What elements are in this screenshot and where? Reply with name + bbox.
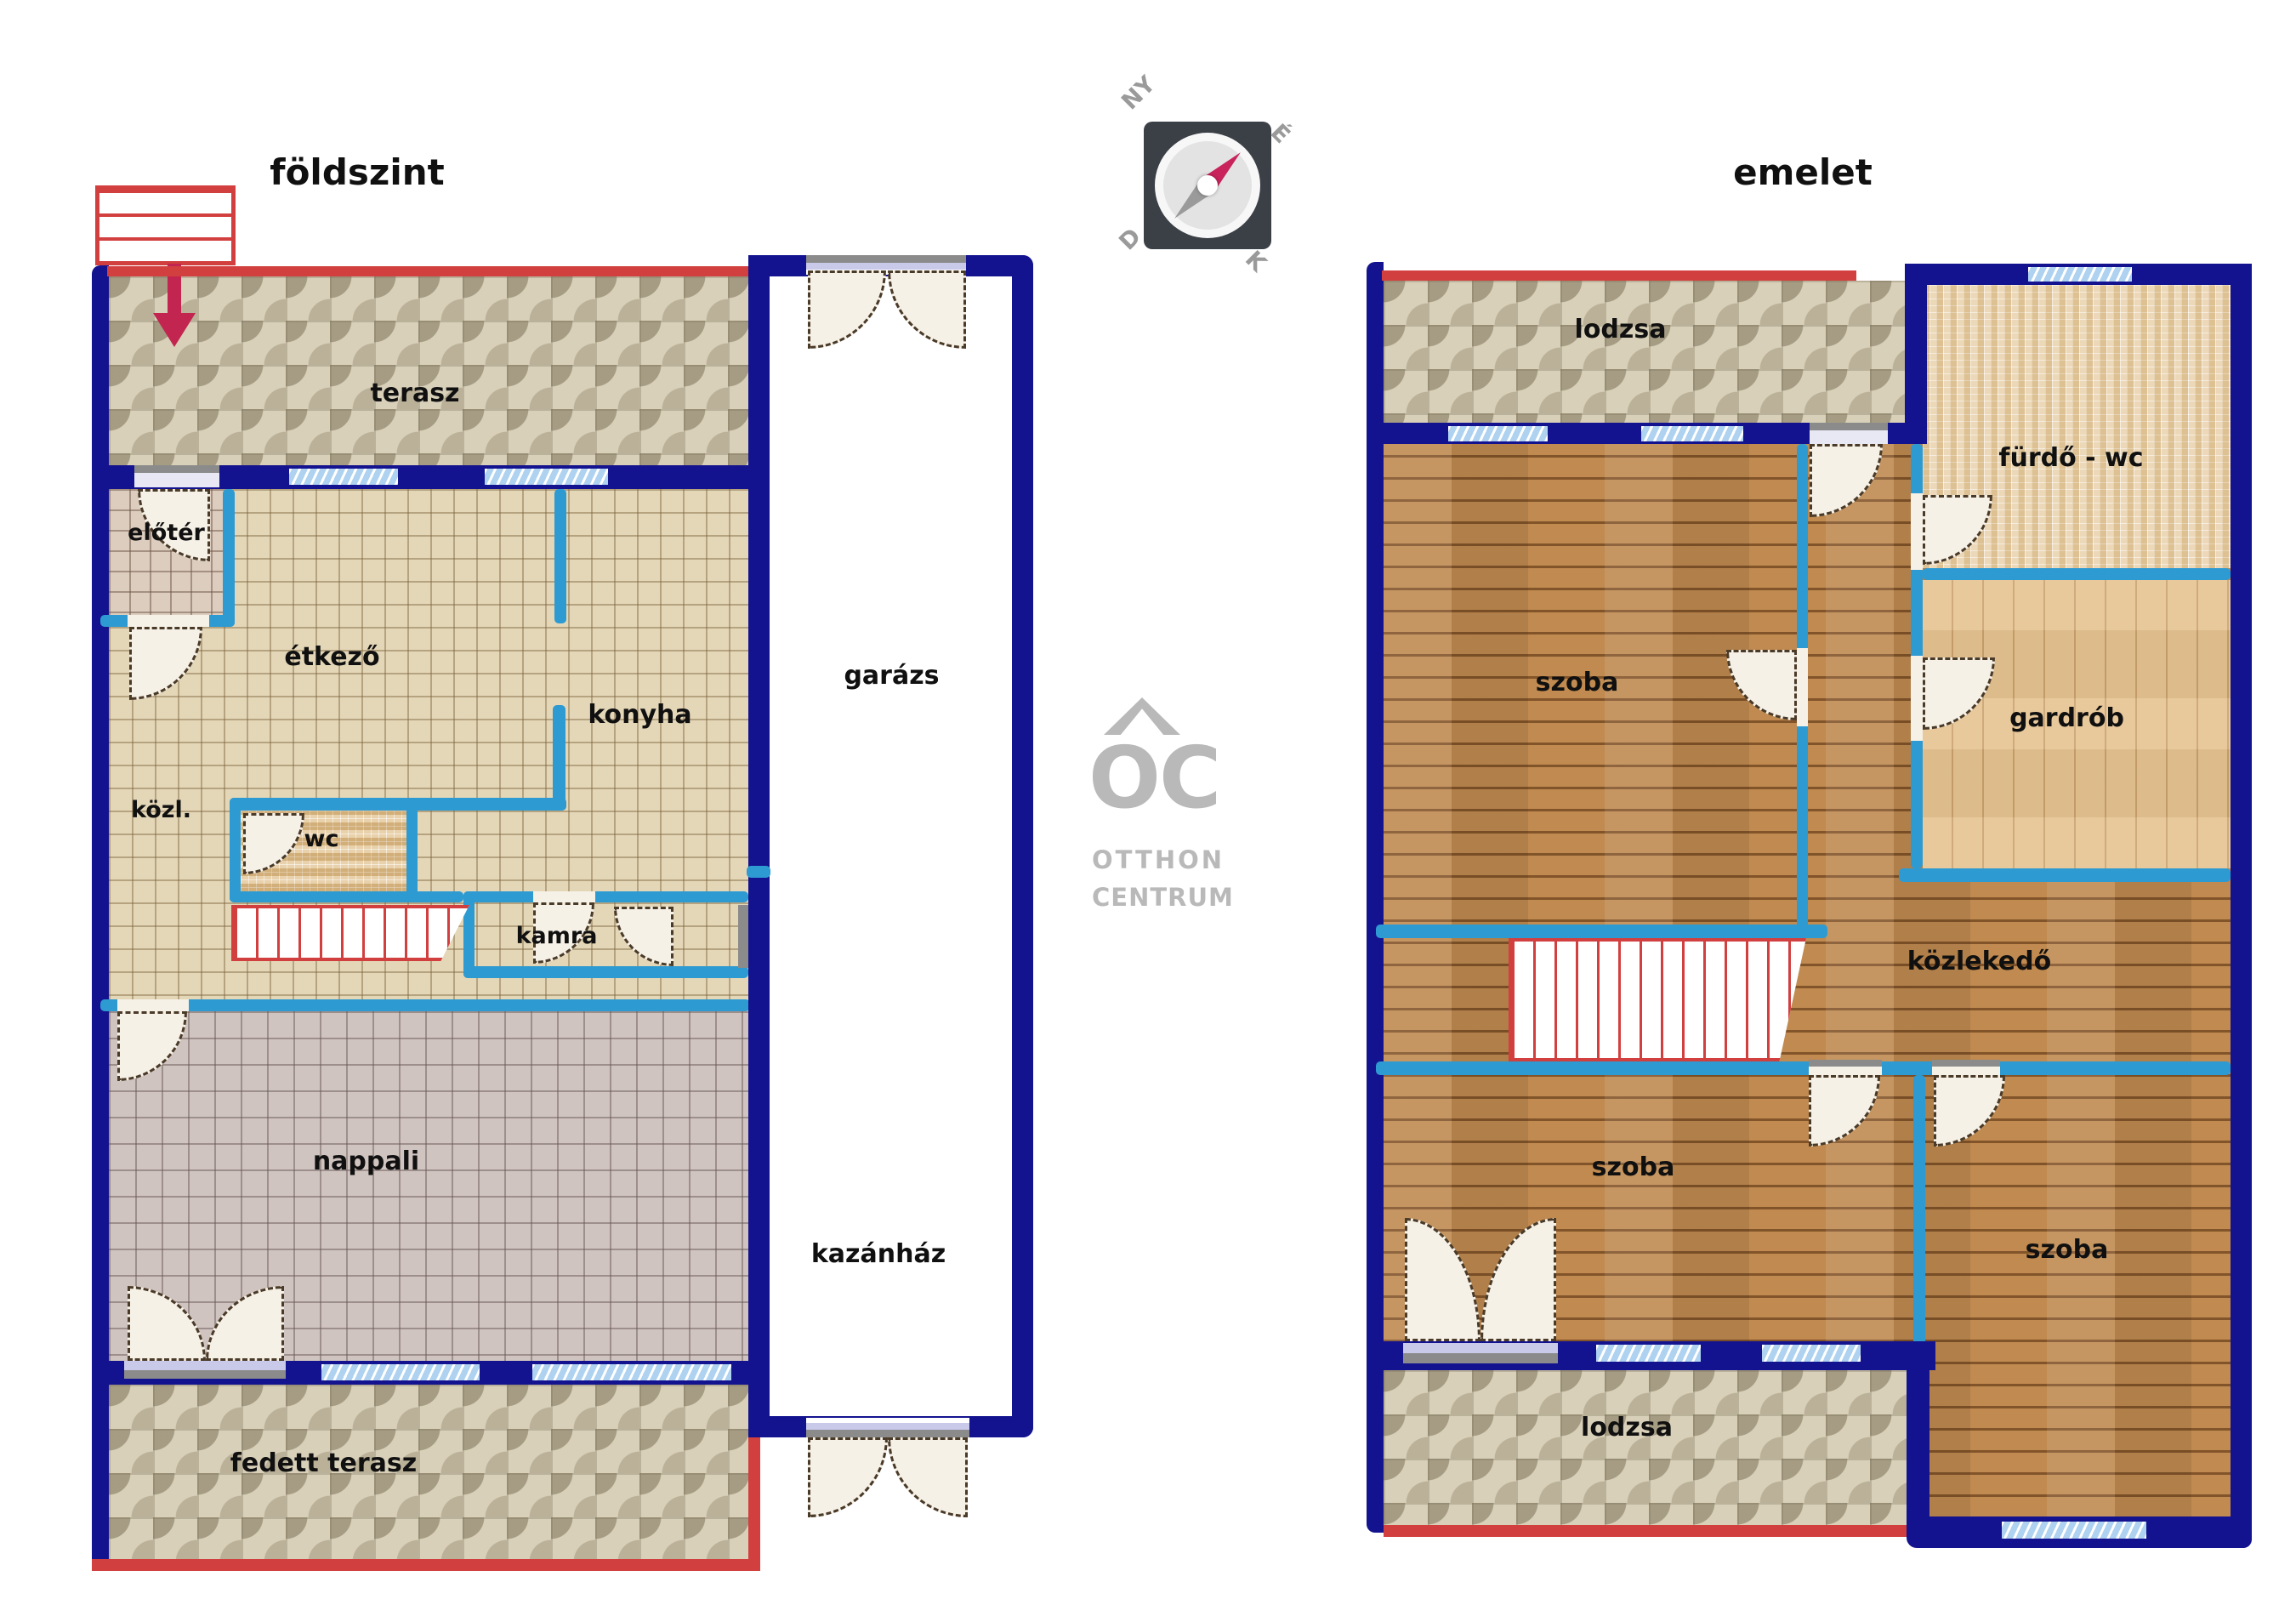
floor-lodzsa-bottom <box>1384 1370 1907 1525</box>
door-arc-kazanhaz-right <box>888 1437 968 1517</box>
wall-below-stairs <box>1376 1061 2231 1075</box>
door-lintel-corridor <box>1810 423 1888 430</box>
room-label-konyha: konyha <box>561 701 719 729</box>
door-gap-eloter-kozl <box>128 615 209 627</box>
edge-fedett-right <box>748 1437 760 1565</box>
wall-eloter-right <box>223 489 235 627</box>
floor-terasz <box>109 276 748 465</box>
wall-garage-right <box>1012 255 1033 1437</box>
wall-wc-top <box>230 798 566 811</box>
wall-kamra-left <box>463 891 475 978</box>
wall-kamra-top <box>463 891 748 902</box>
french-door-sill <box>124 1361 286 1370</box>
floorplan-page: földszint terasz előtér étkező konyha kö… <box>0 0 2296 1616</box>
door-gap-nappali <box>117 999 189 1011</box>
wall-furdo-bottom <box>1923 568 2231 580</box>
door-gap-gardrob <box>1911 656 1923 741</box>
room-label-kozlekedo: közlekedő <box>1845 947 2113 976</box>
door-lintel-szoba-right <box>1932 1060 2000 1067</box>
stairs-upper <box>1509 938 1806 1061</box>
room-label-furdo: fürdő - wc <box>1946 444 2197 472</box>
compass-label-nw: NY <box>1117 71 1161 116</box>
window-nappali-2 <box>532 1364 731 1380</box>
wall-szoba-divider <box>1913 1075 1925 1370</box>
french-door-upper-sill <box>1403 1343 1558 1353</box>
wall-nappali-top <box>100 999 750 1011</box>
wall-wc-right <box>406 798 418 902</box>
door-sill-garage <box>806 263 966 270</box>
window-lodzsa-bottom-2 <box>1762 1345 1861 1362</box>
edge-lodzsa-top <box>1382 270 1856 281</box>
floor-nappali <box>109 1011 748 1361</box>
door-lintel-szoba-mid <box>1809 1060 1882 1067</box>
window-szoba-right <box>2002 1522 2146 1539</box>
door-gap-szoba-top <box>1797 648 1808 726</box>
door-lintel-garage <box>806 255 966 263</box>
wall-wc-left <box>230 798 241 902</box>
french-door-lintel <box>124 1370 286 1379</box>
wall-konyha-stub <box>554 489 566 623</box>
room-label-kozl: közl. <box>104 798 219 823</box>
window-nappali-1 <box>321 1364 480 1380</box>
room-label-gardrob: gardrób <box>1980 704 2154 732</box>
entry-arrow-head <box>153 313 196 347</box>
door-gap-furdo <box>1911 493 1923 570</box>
edge-lodzsa-bottom <box>1384 1525 1907 1537</box>
floor-lodzsa-top <box>1384 281 1905 423</box>
door-sill-kazanhaz <box>806 1423 969 1430</box>
wall-stairs-top <box>1376 925 1827 938</box>
room-label-szoba-mid: szoba <box>1546 1153 1720 1181</box>
wall-lodzsa-bottom-right <box>1907 1370 1929 1537</box>
door-gap-kamra <box>533 891 595 902</box>
window-lodzsa-bottom-1 <box>1596 1345 1701 1362</box>
wall-upper-right <box>2231 264 2252 1548</box>
room-label-terasz: terasz <box>321 379 509 407</box>
door-arc-kazanhaz-left <box>808 1437 888 1517</box>
title-ground-floor: földszint <box>221 153 493 192</box>
door-lintel-kamra-garage <box>738 905 748 968</box>
wall-gardrob-bottom <box>1899 868 2231 882</box>
door-lintel-eloter <box>134 465 219 473</box>
room-label-nappali: nappali <box>279 1147 453 1175</box>
room-label-eloter: előtér <box>100 521 232 546</box>
room-label-etkezo: étkező <box>253 643 411 671</box>
ground-floor-plan: földszint terasz előtér étkező konyha kö… <box>0 0 1071 1616</box>
wall-garage-left <box>748 255 770 1437</box>
opening-garage-wall <box>747 866 770 878</box>
edge-terasz-top <box>107 266 750 276</box>
wall-kamra-bottom <box>463 966 748 978</box>
window-etkezo-2 <box>485 469 608 485</box>
door-lintel-kazanhaz <box>806 1430 969 1437</box>
window-szoba-top-1 <box>1448 426 1548 441</box>
room-label-wc: wc <box>279 827 364 852</box>
room-label-lodzsa-bottom: lodzsa <box>1554 1414 1699 1442</box>
stairs-ground <box>231 905 469 961</box>
wall-lodzsa-top-right <box>1905 270 1927 444</box>
room-label-garazs: garázs <box>804 662 979 690</box>
entry-steps <box>95 185 236 265</box>
window-szoba-top-2 <box>1641 426 1743 441</box>
upper-floor-plan: emelet lodzsa fürdő - wc szoba gardrób k… <box>1191 0 2296 1616</box>
wall-wc-bottom <box>230 891 463 902</box>
room-label-szoba-top: szoba <box>1498 669 1656 697</box>
room-label-szoba-right: szoba <box>1980 1236 2154 1264</box>
edge-fedett-bottom <box>92 1559 760 1571</box>
room-label-lodzsa-top: lodzsa <box>1542 316 1699 344</box>
compass-label-sw: D <box>1114 224 1146 256</box>
room-label-kazanhaz: kazánház <box>772 1240 985 1268</box>
title-upper-floor: emelet <box>1667 153 1939 192</box>
window-furdo <box>2028 267 2132 282</box>
window-etkezo-1 <box>289 469 398 485</box>
french-door-upper-lintel <box>1403 1353 1558 1363</box>
room-label-kamra: kamra <box>478 924 635 949</box>
room-label-fedett-terasz: fedett terasz <box>202 1449 445 1477</box>
